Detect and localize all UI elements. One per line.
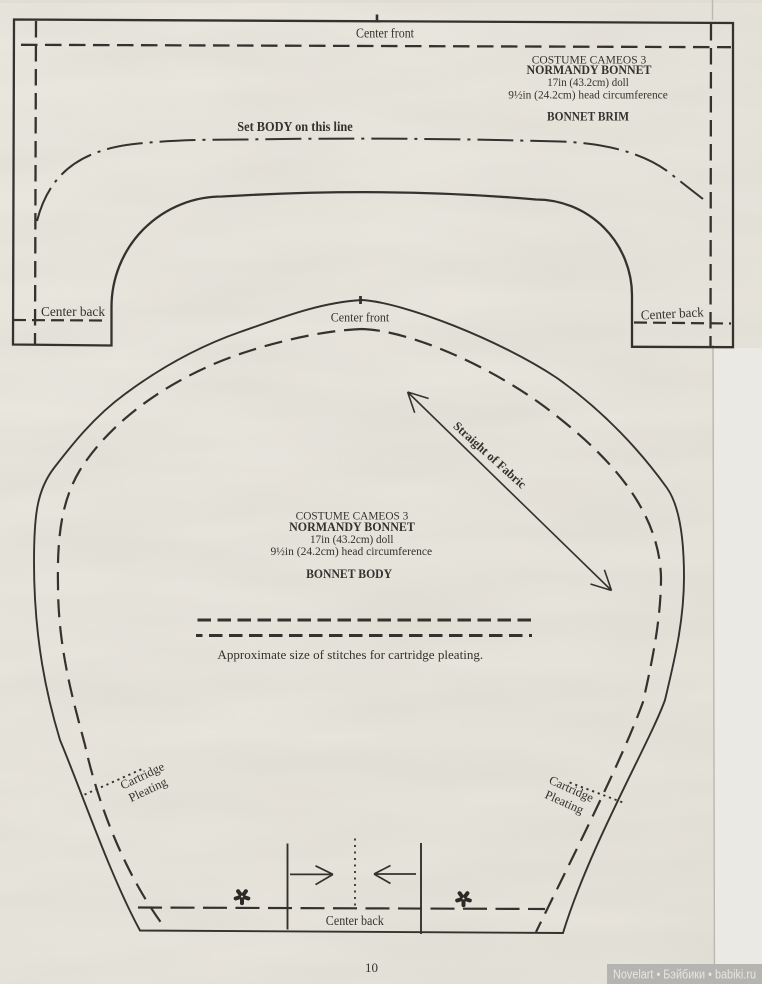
svg-text:Center back: Center back: [41, 304, 105, 319]
svg-text:NORMANDY BONNET: NORMANDY BONNET: [289, 520, 415, 534]
svg-text:Center back: Center back: [326, 913, 384, 928]
svg-text:10: 10: [365, 960, 378, 975]
svg-text:9½in (24.2cm) head circumferen: 9½in (24.2cm) head circumference: [508, 89, 668, 101]
svg-text:NORMANDY BONNET: NORMANDY BONNET: [527, 63, 653, 77]
svg-text:17in (43.2cm) doll: 17in (43.2cm) doll: [310, 534, 394, 546]
svg-text:BONNET BRIM: BONNET BRIM: [547, 110, 629, 124]
svg-text:Novelart • Бэйбики • babiki.ru: Novelart • Бэйбики • babiki.ru: [613, 968, 756, 982]
svg-text:Approximate size of stitches f: Approximate size of stitches for cartrid…: [217, 648, 483, 662]
svg-text:Center front: Center front: [331, 310, 390, 325]
svg-text:Center front: Center front: [356, 26, 414, 41]
svg-text:9½in (24.2cm) head circumferen: 9½in (24.2cm) head circumference: [270, 546, 432, 558]
svg-text:17in (43.2cm) doll: 17in (43.2cm) doll: [547, 77, 629, 89]
svg-text:BONNET BODY: BONNET BODY: [306, 567, 392, 581]
svg-text:Set BODY on this line: Set BODY on this line: [237, 119, 353, 134]
